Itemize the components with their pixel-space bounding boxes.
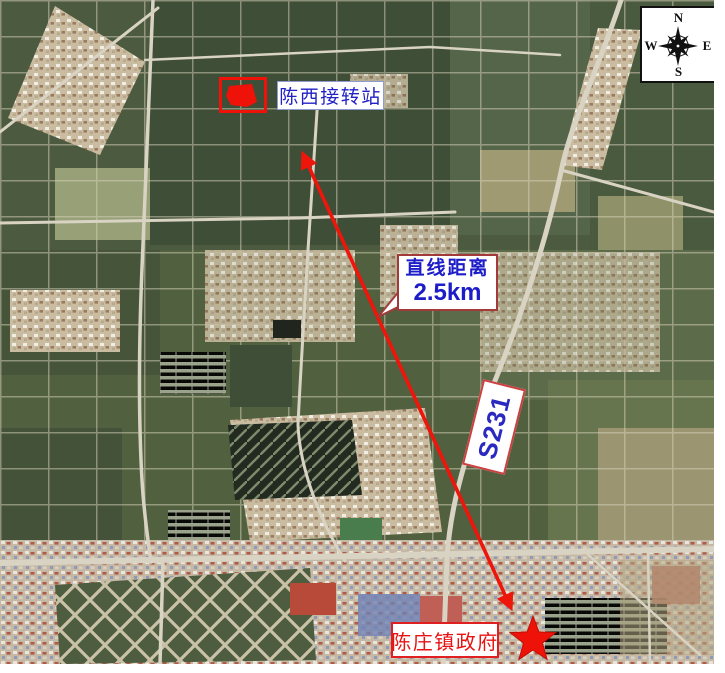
distance-callout-line2: 2.5km — [413, 280, 481, 306]
compass-south-label: S — [675, 64, 682, 80]
station-label: 陈西接转站 — [277, 81, 384, 110]
station-boundary-marker — [219, 77, 267, 113]
compass-east-label: E — [703, 38, 712, 54]
distance-callout-line1: 直线距离 — [405, 259, 489, 280]
compass-rose: N S E W — [640, 6, 714, 83]
figure-page: 陈西接转站 直线距离 2.5km S231 陈庄镇政府 N S E — [0, 0, 725, 673]
road-label-text: S231 — [471, 392, 517, 462]
station-label-text: 陈西接转站 — [279, 82, 382, 109]
government-label-text: 陈庄镇政府 — [391, 626, 499, 655]
compass-west-label: W — [645, 38, 658, 54]
government-label: 陈庄镇政府 — [391, 622, 499, 658]
satellite-map: 陈西接转站 直线距离 2.5km S231 陈庄镇政府 N S E — [0, 0, 714, 664]
compass-north-label: N — [674, 10, 683, 26]
distance-callout: 直线距离 2.5km — [397, 254, 498, 311]
